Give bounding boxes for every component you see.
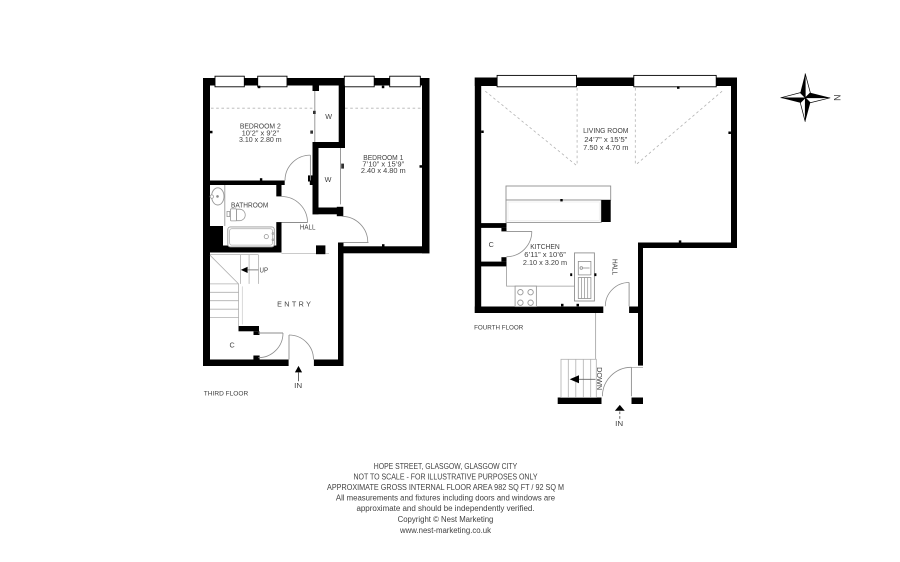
svg-text:3.10 x 2.80 m: 3.10 x 2.80 m [239, 135, 282, 144]
svg-text:2.10 x 3.20 m: 2.10 x 3.20 m [523, 258, 567, 267]
svg-text:BATHROOM: BATHROOM [231, 201, 268, 210]
svg-text:HALL: HALL [611, 259, 620, 275]
svg-text:UP: UP [260, 266, 269, 275]
svg-text:7.50 x 4.70 m: 7.50 x 4.70 m [583, 143, 628, 152]
svg-text:N: N [832, 95, 842, 101]
svg-text:THIRD FLOOR: THIRD FLOOR [204, 390, 248, 397]
svg-text:HALL: HALL [300, 222, 316, 231]
svg-text:C: C [229, 341, 234, 350]
svg-text:LIVING ROOM: LIVING ROOM [583, 126, 628, 135]
svg-text:C: C [489, 240, 494, 249]
svg-text:IN: IN [615, 419, 623, 428]
svg-text:DOWN: DOWN [595, 367, 604, 390]
svg-text:IN: IN [294, 381, 302, 390]
svg-text:approximate and should be inde: approximate and should be independently … [356, 504, 534, 513]
svg-text:W: W [325, 112, 332, 121]
svg-text:2.40 x 4.80 m: 2.40 x 4.80 m [361, 166, 406, 175]
svg-text:All measurements and fixtures: All measurements and fixtures including … [336, 493, 556, 502]
svg-text:APPROXIMATE GROSS INTERNAL FLO: APPROXIMATE GROSS INTERNAL FLOOR AREA 98… [327, 483, 564, 492]
svg-text:Copyright © Nest Marketing: Copyright © Nest Marketing [398, 515, 494, 524]
svg-text:www.nest-marketing.co.uk: www.nest-marketing.co.uk [399, 526, 492, 535]
svg-text:HOPE STREET, GLASGOW, GLASGOW: HOPE STREET, GLASGOW, GLASGOW CITY [374, 462, 518, 471]
svg-text:NOT TO SCALE - FOR ILLUSTRATIV: NOT TO SCALE - FOR ILLUSTRATIVE PURPOSES… [353, 472, 538, 481]
svg-text:W: W [325, 175, 332, 184]
svg-text:FOURTH FLOOR: FOURTH FLOOR [474, 324, 523, 331]
